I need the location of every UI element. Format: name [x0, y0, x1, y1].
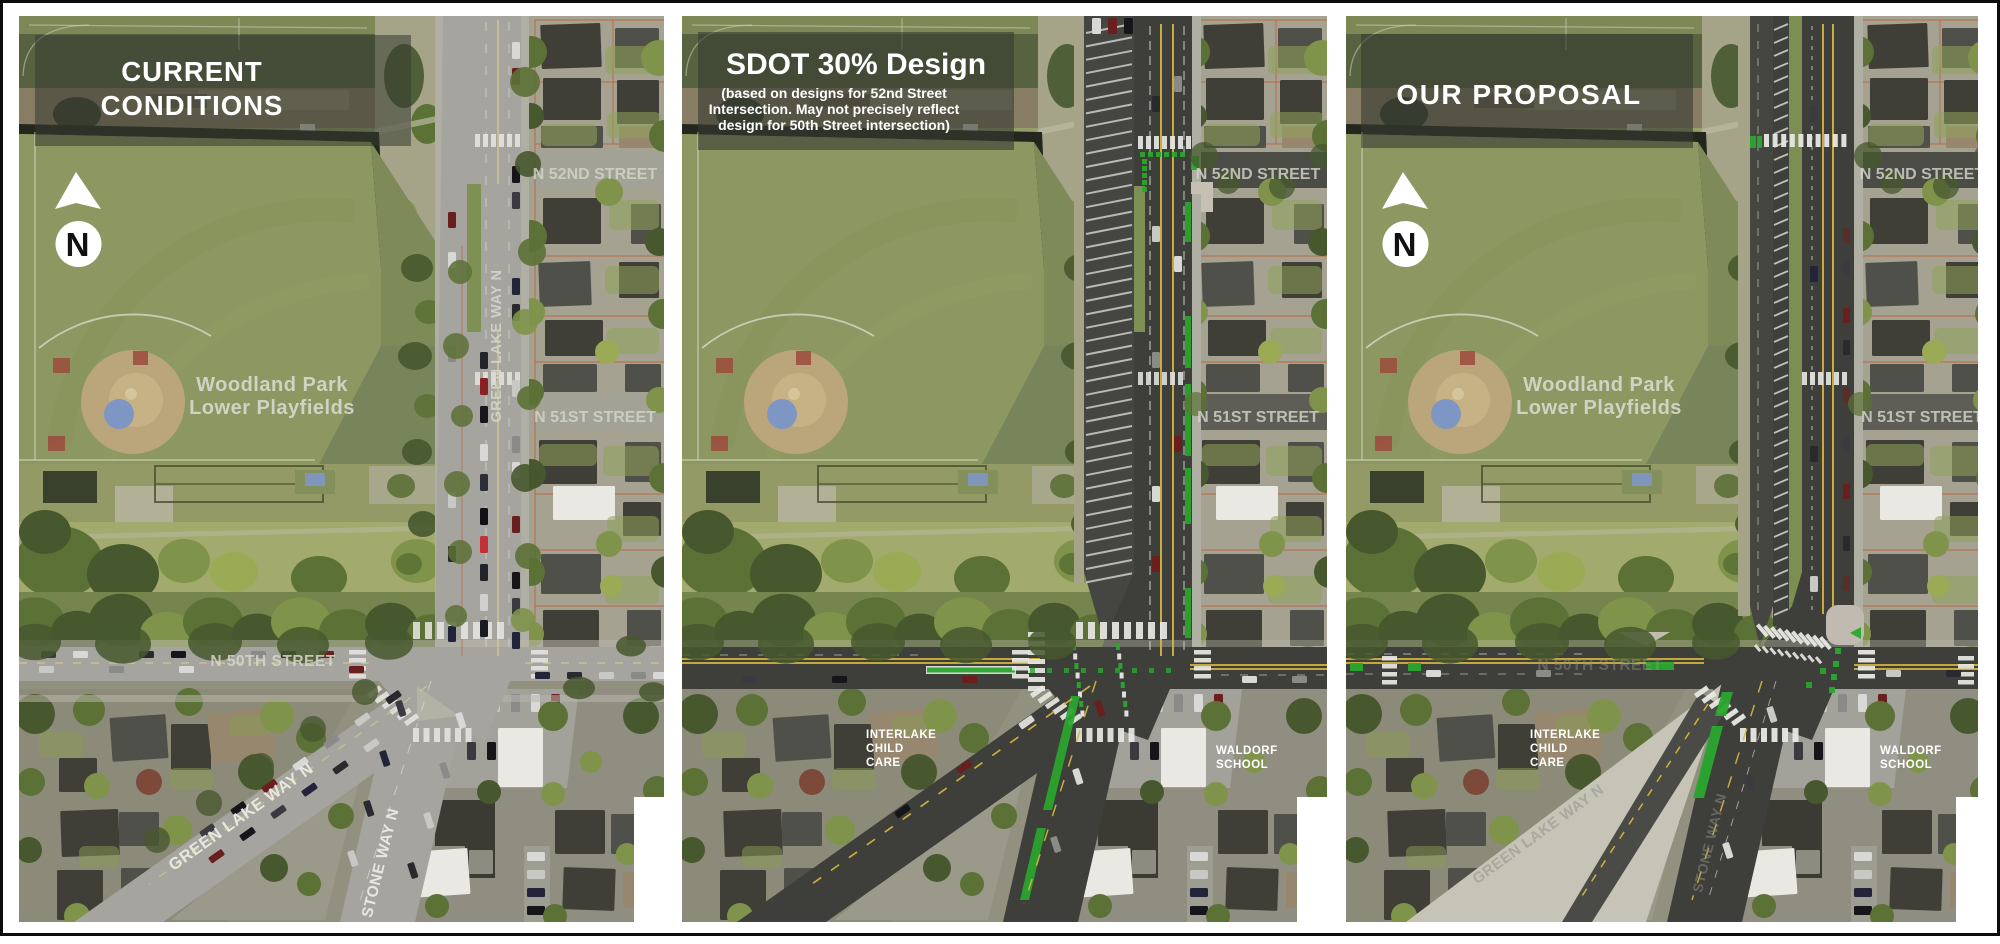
svg-text:WALDORF: WALDORF	[1880, 745, 1942, 757]
svg-text:Lower Playfields: Lower Playfields	[1516, 397, 1682, 419]
svg-text:SCHOOL: SCHOOL	[1880, 759, 1932, 771]
svg-text:CHILD: CHILD	[866, 743, 904, 755]
svg-text:CARE: CARE	[866, 757, 901, 769]
svg-text:design for 50th Street interse: design for 50th Street intersection)	[718, 117, 950, 133]
svg-text:Lower Playfields: Lower Playfields	[189, 397, 355, 419]
svg-text:INTERLAKE: INTERLAKE	[1530, 729, 1600, 741]
svg-text:INTERLAKE: INTERLAKE	[866, 729, 936, 741]
svg-text:N: N	[1393, 226, 1417, 263]
svg-text:CURRENT: CURRENT	[121, 56, 262, 87]
svg-text:SDOT 30% Design: SDOT 30% Design	[726, 48, 986, 81]
svg-text:N 50TH STREET: N 50TH STREET	[210, 653, 335, 670]
svg-text:N 50TH STREET: N 50TH STREET	[1537, 657, 1662, 674]
svg-text:N 51ST STREET: N 51ST STREET	[1861, 409, 1983, 426]
svg-text:Woodland Park: Woodland Park	[1523, 374, 1675, 396]
svg-text:Woodland Park: Woodland Park	[196, 374, 348, 396]
svg-text:SCHOOL: SCHOOL	[1216, 759, 1268, 771]
svg-text:N 51ST STREET: N 51ST STREET	[1197, 409, 1319, 426]
svg-text:N: N	[66, 226, 90, 263]
svg-text:N 52ND STREET: N 52ND STREET	[533, 166, 658, 183]
svg-text:Intersection. May not precisel: Intersection. May not precisely reflect	[709, 101, 960, 117]
svg-text:N 52ND STREET: N 52ND STREET	[1196, 166, 1321, 183]
svg-text:OUR PROPOSAL: OUR PROPOSAL	[1396, 79, 1641, 110]
svg-text:(based on designs for 52nd Str: (based on designs for 52nd Street	[721, 85, 947, 101]
svg-text:N 52ND STREET: N 52ND STREET	[1860, 166, 1985, 183]
svg-text:CONDITIONS: CONDITIONS	[101, 90, 284, 121]
svg-text:CARE: CARE	[1530, 757, 1565, 769]
svg-text:CHILD: CHILD	[1530, 743, 1568, 755]
svg-text:WALDORF: WALDORF	[1216, 745, 1278, 757]
svg-text:N 51ST STREET: N 51ST STREET	[534, 409, 656, 426]
svg-text:GREEN LAKE WAY N: GREEN LAKE WAY N	[489, 269, 505, 422]
